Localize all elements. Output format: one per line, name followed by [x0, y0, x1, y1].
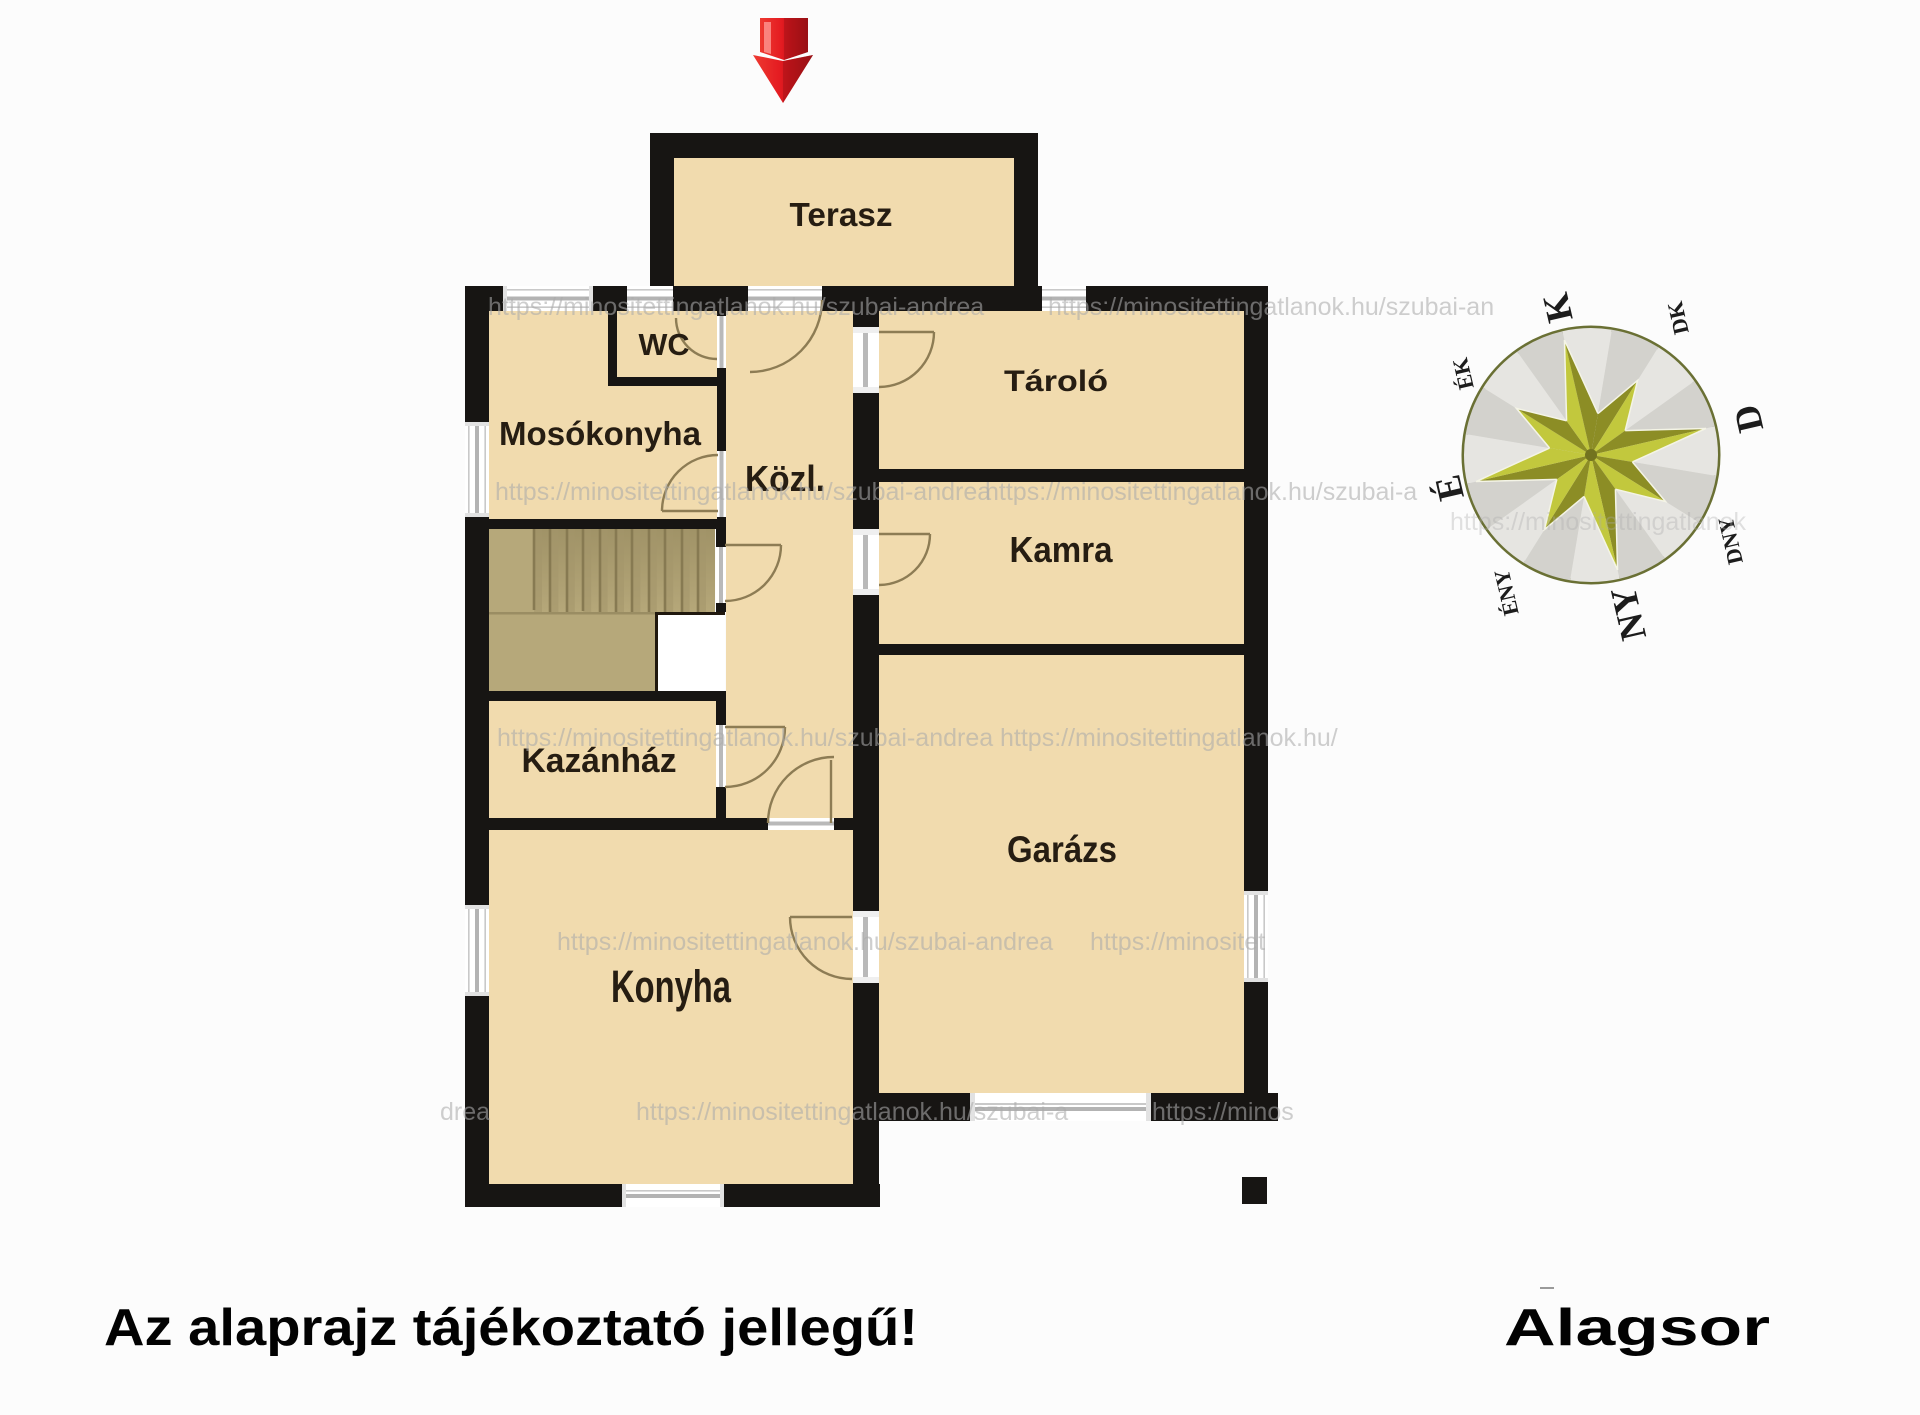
svg-text:Terasz: Terasz: [790, 196, 893, 233]
svg-text:Kamra: Kamra: [1010, 529, 1114, 570]
svg-text:https://minositettingatlanok.h: https://minositettingatlanok.hu/szubai-a: [636, 1098, 1068, 1126]
svg-text:É: É: [1426, 471, 1472, 505]
svg-text:D: D: [1726, 401, 1772, 436]
svg-text:https://minositettingatlanok.h: https://minositettingatlanok.hu/szubai-a…: [495, 478, 991, 506]
svg-text:https://minos: https://minos: [1152, 1098, 1294, 1126]
svg-text:Mosókonyha: Mosókonyha: [499, 415, 702, 452]
svg-text:drea: drea: [440, 1098, 490, 1126]
svg-text:Alagsor: Alagsor: [1504, 1299, 1770, 1357]
svg-text:Garázs: Garázs: [1007, 829, 1117, 870]
svg-text:https://minositet: https://minositet: [1090, 928, 1265, 956]
svg-text:https://minositettingatlanok.h: https://minositettingatlanok.hu/szubai-a…: [1048, 293, 1494, 321]
svg-text:WC: WC: [639, 327, 690, 362]
svg-text:https://minositettingatlanok.h: https://minositettingatlanok.hu/szubai-a…: [497, 724, 993, 752]
svg-text:K: K: [1535, 289, 1581, 326]
svg-text:Tároló: Tároló: [1004, 365, 1108, 398]
svg-text:NY: NY: [1603, 583, 1655, 645]
svg-text:https://minositettingatlanok.h: https://minositettingatlanok.hu/szubai-a…: [557, 928, 1053, 956]
svg-text:Az alaprajz tájékoztató jelleg: Az alaprajz tájékoztató jellegű!: [104, 1299, 918, 1357]
svg-text:https://minositettingatlanok: https://minositettingatlanok: [1450, 508, 1746, 536]
svg-text:ÉK: ÉK: [1447, 355, 1479, 392]
svg-text:ÉNY: ÉNY: [1489, 567, 1524, 618]
svg-text:https://minositettingatlanok.h: https://minositettingatlanok.hu/: [1000, 724, 1338, 752]
svg-text:https://minositettingatlanok.h: https://minositettingatlanok.hu/szubai-a: [985, 478, 1417, 506]
svg-text:DK: DK: [1662, 299, 1694, 337]
svg-text:Konyha: Konyha: [611, 961, 732, 1012]
svg-text:https://minositettingatlanok.h: https://minositettingatlanok.hu/szubai-a…: [488, 293, 984, 321]
